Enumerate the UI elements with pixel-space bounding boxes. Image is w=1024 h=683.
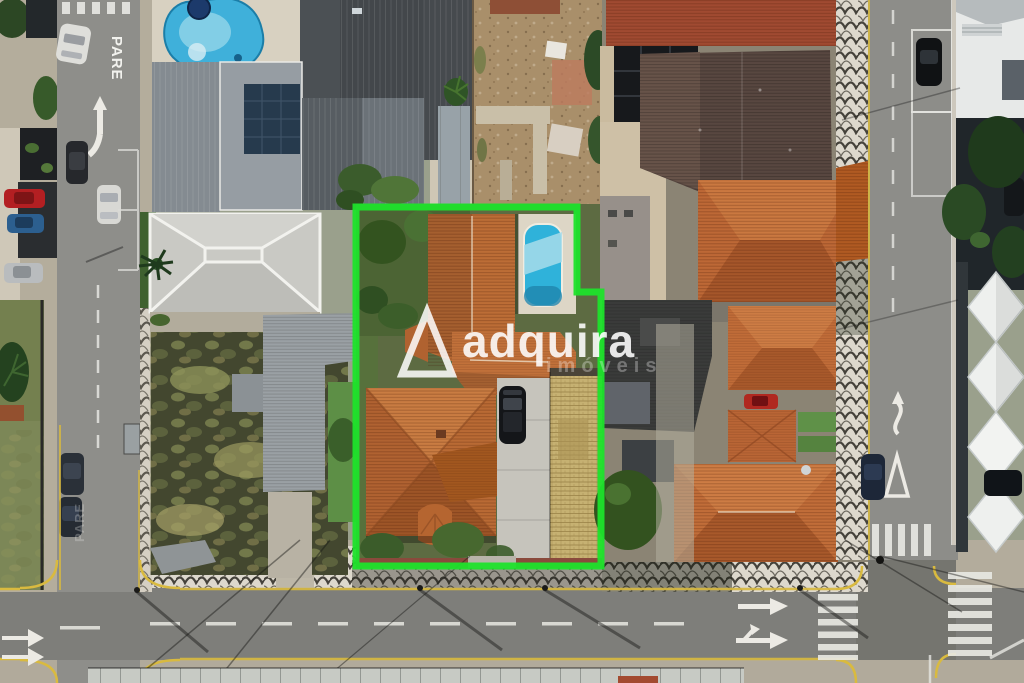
pare-road-marking: PARE <box>108 36 125 81</box>
utility-box <box>124 424 140 454</box>
watermark-subtitle: imóveis <box>546 355 662 377</box>
pare-road-marking-faded: PARE <box>72 503 87 542</box>
concrete-path <box>268 492 312 578</box>
highlighted-property <box>356 204 604 568</box>
dirt-lot <box>473 0 612 205</box>
aerial-photo: PARE PARE <box>0 0 1024 683</box>
terracotta-roof-4 <box>674 464 838 562</box>
right-middle-block <box>594 0 868 592</box>
aerial-photo-canvas: PARE PARE <box>0 0 1024 683</box>
dark-roof <box>20 128 57 180</box>
left-street: PARE PARE <box>55 0 152 592</box>
pool-umbrella <box>188 0 210 19</box>
terracotta-roof-3 <box>728 410 796 462</box>
vacant-lot-overgrown <box>150 313 360 578</box>
terracotta-roof-2 <box>728 306 844 390</box>
lawn <box>798 412 840 432</box>
parked-suv-dark-right <box>984 470 1022 496</box>
khaki-tile-roof <box>550 368 604 558</box>
white-ridge-roof-house <box>150 214 320 312</box>
aged-dark-roof <box>640 50 832 192</box>
small-pool-area <box>515 214 576 314</box>
bottom-warehouse-roof <box>88 668 744 683</box>
intersection-asphalt <box>856 556 956 664</box>
satellite-dish <box>801 465 811 475</box>
driveway <box>497 378 551 562</box>
parked-car-white <box>55 23 92 66</box>
right-street <box>836 0 1024 560</box>
hip-roof-main <box>366 388 497 545</box>
left-edge-properties <box>0 0 59 592</box>
terracotta-roof-1 <box>698 180 856 302</box>
